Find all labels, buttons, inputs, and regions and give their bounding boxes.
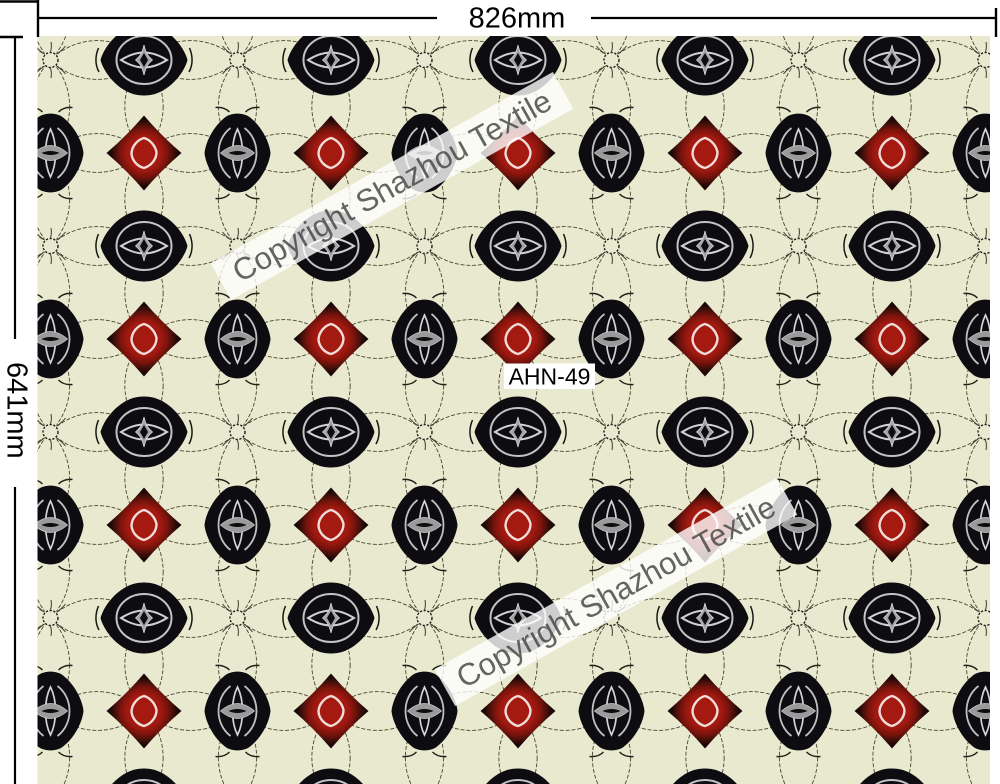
svg-text:826mm: 826mm	[469, 3, 566, 35]
svg-text:AHN-49: AHN-49	[509, 364, 591, 390]
svg-text:641mm: 641mm	[1, 362, 33, 459]
